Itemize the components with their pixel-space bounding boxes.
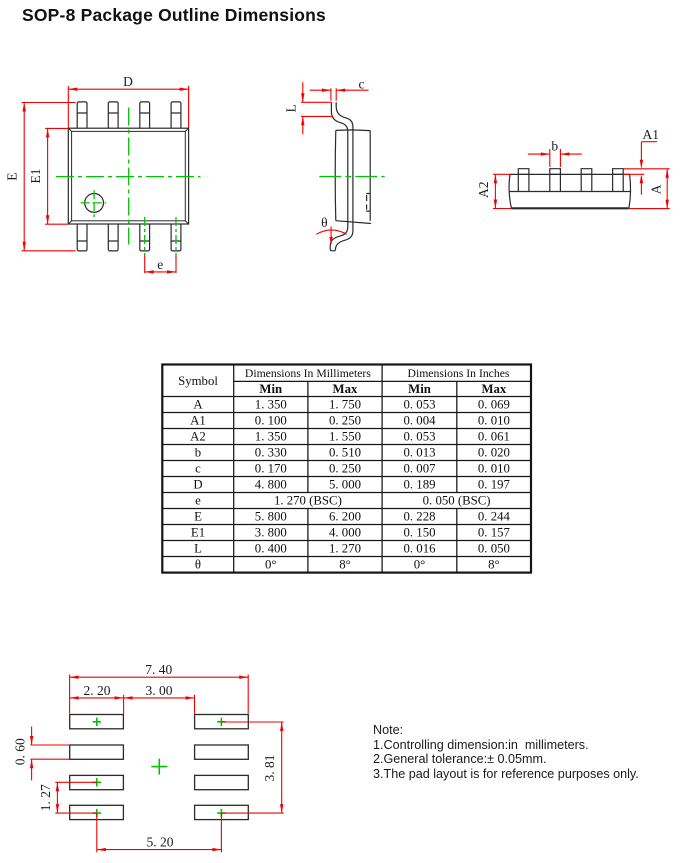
svg-text:0. 020: 0. 020 bbox=[478, 446, 510, 460]
svg-text:E: E bbox=[194, 510, 202, 524]
svg-text:0. 010: 0. 010 bbox=[478, 462, 510, 476]
svg-text:0. 100: 0. 100 bbox=[255, 414, 287, 428]
svg-text:A1: A1 bbox=[190, 414, 206, 428]
svg-text:D: D bbox=[193, 478, 202, 492]
svg-text:0. 013: 0. 013 bbox=[404, 446, 436, 460]
svg-text:0. 053: 0. 053 bbox=[404, 430, 436, 444]
svg-text:e: e bbox=[195, 494, 201, 508]
svg-text:L: L bbox=[194, 542, 202, 556]
svg-text:0. 061: 0. 061 bbox=[478, 430, 510, 444]
svg-text:1. 750: 1. 750 bbox=[329, 398, 361, 412]
svg-text:0. 050 (BSC): 0. 050 (BSC) bbox=[423, 494, 491, 508]
svg-text:1. 270: 1. 270 bbox=[329, 542, 361, 556]
svg-text:c: c bbox=[195, 462, 201, 476]
svg-text:4. 800: 4. 800 bbox=[255, 478, 287, 492]
svg-text:0. 400: 0. 400 bbox=[255, 542, 287, 556]
svg-text:0. 170: 0. 170 bbox=[255, 462, 287, 476]
svg-text:Min: Min bbox=[259, 382, 282, 396]
svg-text:0. 189: 0. 189 bbox=[404, 478, 436, 492]
svg-text:0. 244: 0. 244 bbox=[478, 510, 511, 524]
svg-text:4. 000: 4. 000 bbox=[329, 526, 361, 540]
svg-text:Max: Max bbox=[481, 382, 506, 396]
svg-text:1. 350: 1. 350 bbox=[255, 430, 287, 444]
svg-text:1. 270 (BSC): 1. 270 (BSC) bbox=[274, 494, 342, 508]
svg-text:0. 330: 0. 330 bbox=[255, 446, 287, 460]
svg-text:5. 000: 5. 000 bbox=[329, 478, 361, 492]
svg-text:Dimensions In Millimeters: Dimensions In Millimeters bbox=[245, 367, 371, 380]
svg-text:0. 150: 0. 150 bbox=[404, 526, 436, 540]
svg-text:0. 016: 0. 016 bbox=[404, 542, 437, 556]
svg-text:3. 800: 3. 800 bbox=[255, 526, 287, 540]
svg-text:8°: 8° bbox=[488, 558, 500, 572]
svg-text:0. 228: 0. 228 bbox=[404, 510, 436, 524]
svg-text:0. 050: 0. 050 bbox=[478, 542, 510, 556]
svg-text:5. 800: 5. 800 bbox=[255, 510, 287, 524]
svg-text:0. 510: 0. 510 bbox=[329, 446, 361, 460]
svg-text:0. 007: 0. 007 bbox=[404, 462, 437, 476]
svg-text:1. 350: 1. 350 bbox=[255, 398, 287, 412]
svg-text:0. 197: 0. 197 bbox=[478, 478, 511, 492]
svg-text:0°: 0° bbox=[414, 558, 426, 572]
svg-text:A2: A2 bbox=[190, 430, 206, 444]
svg-text:8°: 8° bbox=[339, 558, 351, 572]
svg-text:0. 010: 0. 010 bbox=[478, 414, 510, 428]
svg-text:Symbol: Symbol bbox=[178, 374, 218, 388]
svg-text:0. 004: 0. 004 bbox=[404, 414, 437, 428]
svg-text:E1: E1 bbox=[191, 526, 205, 540]
svg-text:6. 200: 6. 200 bbox=[329, 510, 361, 524]
svg-text:1. 550: 1. 550 bbox=[329, 430, 361, 444]
svg-text:0. 053: 0. 053 bbox=[404, 398, 436, 412]
svg-text:Dimensions In Inches: Dimensions In Inches bbox=[408, 367, 510, 380]
svg-text:θ: θ bbox=[195, 558, 201, 572]
svg-text:Max: Max bbox=[333, 382, 358, 396]
svg-text:0. 157: 0. 157 bbox=[478, 526, 511, 540]
svg-text:0. 250: 0. 250 bbox=[329, 462, 361, 476]
svg-text:A: A bbox=[193, 398, 203, 412]
svg-text:b: b bbox=[195, 446, 201, 460]
svg-text:Min: Min bbox=[408, 382, 431, 396]
svg-text:0°: 0° bbox=[265, 558, 277, 572]
svg-text:0. 250: 0. 250 bbox=[329, 414, 361, 428]
svg-text:0. 069: 0. 069 bbox=[478, 398, 510, 412]
